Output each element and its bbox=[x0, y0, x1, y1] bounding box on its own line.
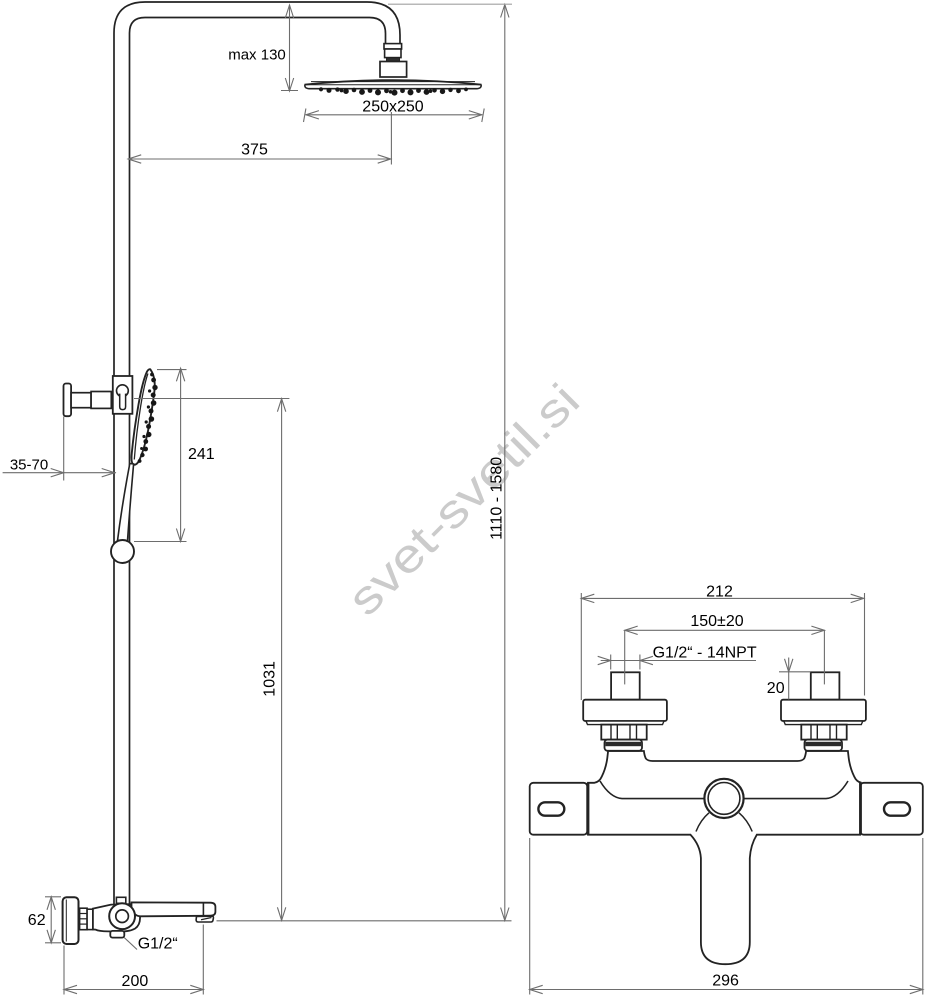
svg-text:G1/2“: G1/2“ bbox=[138, 936, 178, 953]
svg-text:296: 296 bbox=[712, 973, 739, 990]
svg-text:35-70: 35-70 bbox=[10, 457, 48, 474]
svg-text:20: 20 bbox=[767, 680, 785, 697]
svg-text:200: 200 bbox=[122, 973, 149, 990]
svg-text:375: 375 bbox=[241, 142, 268, 159]
svg-text:212: 212 bbox=[706, 584, 733, 601]
svg-text:G1/2“ - 14NPT: G1/2“ - 14NPT bbox=[653, 645, 757, 662]
svg-text:1031: 1031 bbox=[262, 661, 279, 697]
svg-text:62: 62 bbox=[28, 912, 46, 929]
svg-text:150±20: 150±20 bbox=[690, 613, 743, 630]
svg-text:241: 241 bbox=[188, 446, 215, 463]
svg-text:1110 - 1580: 1110 - 1580 bbox=[489, 457, 506, 540]
svg-text:250x250: 250x250 bbox=[362, 99, 423, 116]
svg-text:max 130: max 130 bbox=[228, 47, 286, 64]
